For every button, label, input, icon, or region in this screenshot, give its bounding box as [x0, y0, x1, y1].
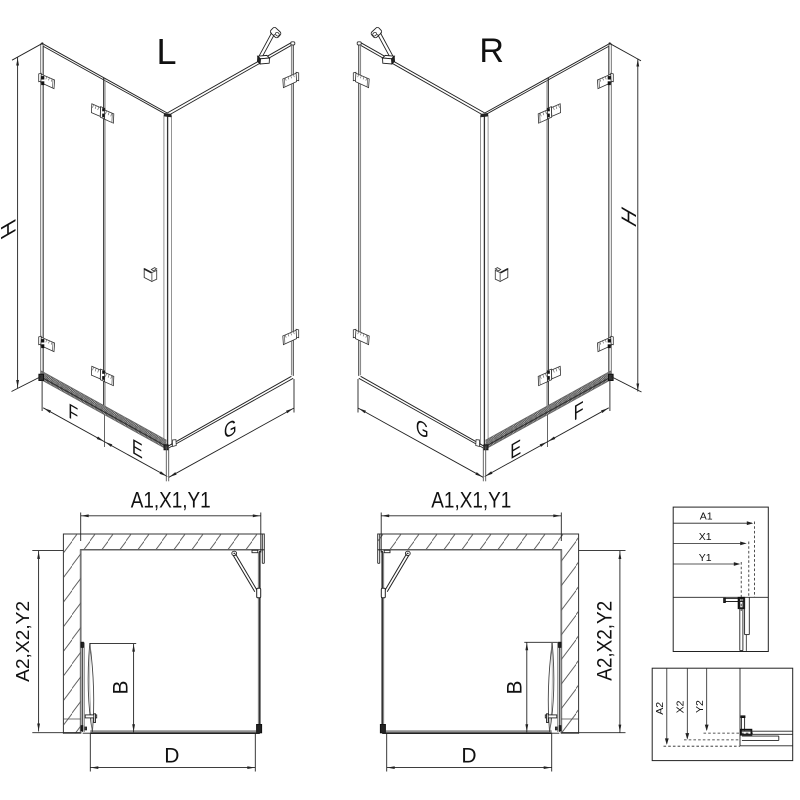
- svg-text:B: B: [503, 680, 526, 694]
- svg-text:A1,X1,Y1: A1,X1,Y1: [131, 488, 211, 513]
- svg-text:A1,X1,Y1: A1,X1,Y1: [431, 488, 511, 513]
- svg-text:D: D: [461, 744, 476, 767]
- svg-text:A2,X2,Y2: A2,X2,Y2: [594, 601, 617, 681]
- svg-text:A2,X2,Y2: A2,X2,Y2: [12, 601, 33, 682]
- svg-text:A1: A1: [700, 510, 713, 522]
- svg-text:R: R: [479, 32, 504, 70]
- svg-text:X2: X2: [675, 700, 687, 713]
- svg-text:A2: A2: [654, 702, 666, 715]
- svg-text:B: B: [109, 680, 132, 694]
- svg-text:Y2: Y2: [694, 700, 706, 713]
- svg-text:D: D: [164, 744, 179, 767]
- svg-text:X1: X1: [699, 531, 712, 543]
- svg-text:L: L: [156, 31, 176, 72]
- svg-text:Y1: Y1: [699, 552, 712, 564]
